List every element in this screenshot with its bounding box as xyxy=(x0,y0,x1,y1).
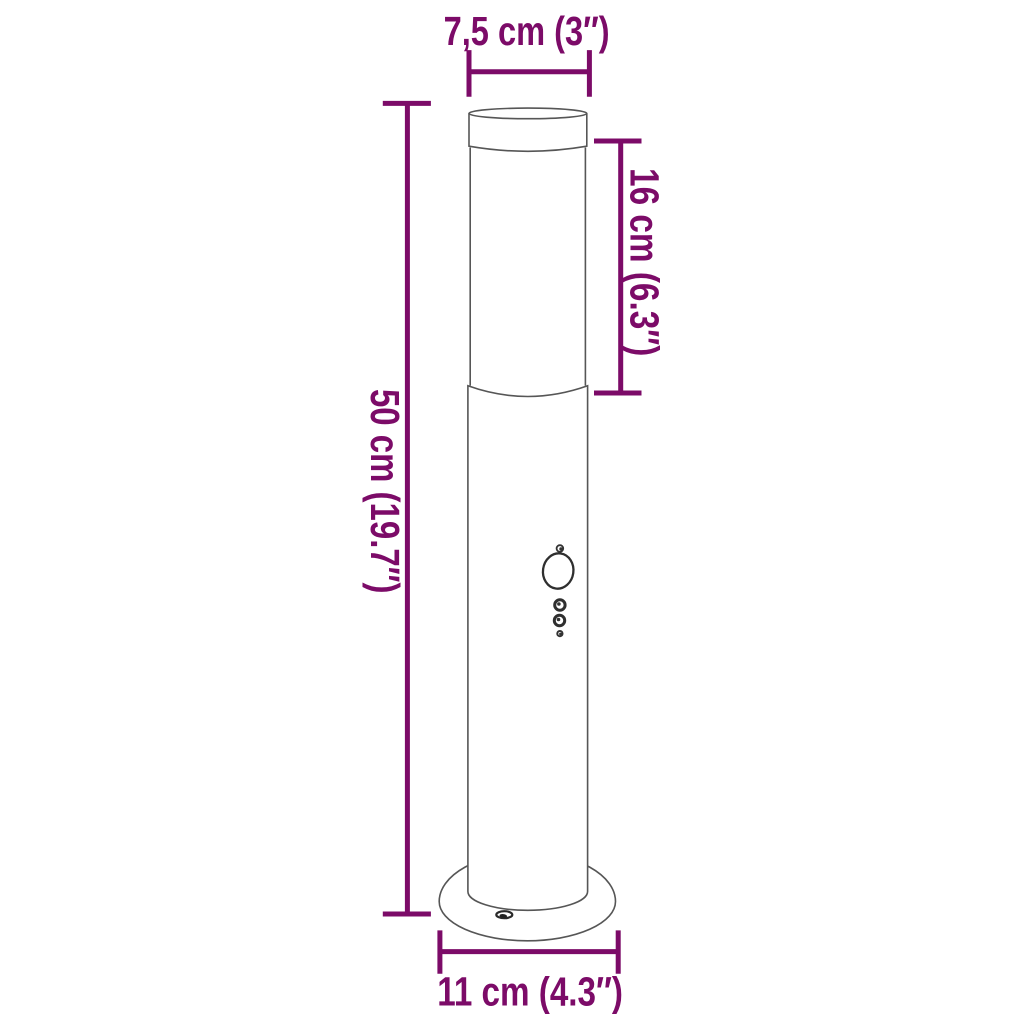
svg-text:16 cm (6.3″): 16 cm (6.3″) xyxy=(622,168,668,356)
svg-text:7,5 cm (3″): 7,5 cm (3″) xyxy=(444,8,610,54)
svg-text:50 cm (19.7″): 50 cm (19.7″) xyxy=(362,389,408,594)
svg-text:11 cm (4.3″): 11 cm (4.3″) xyxy=(437,969,623,1015)
